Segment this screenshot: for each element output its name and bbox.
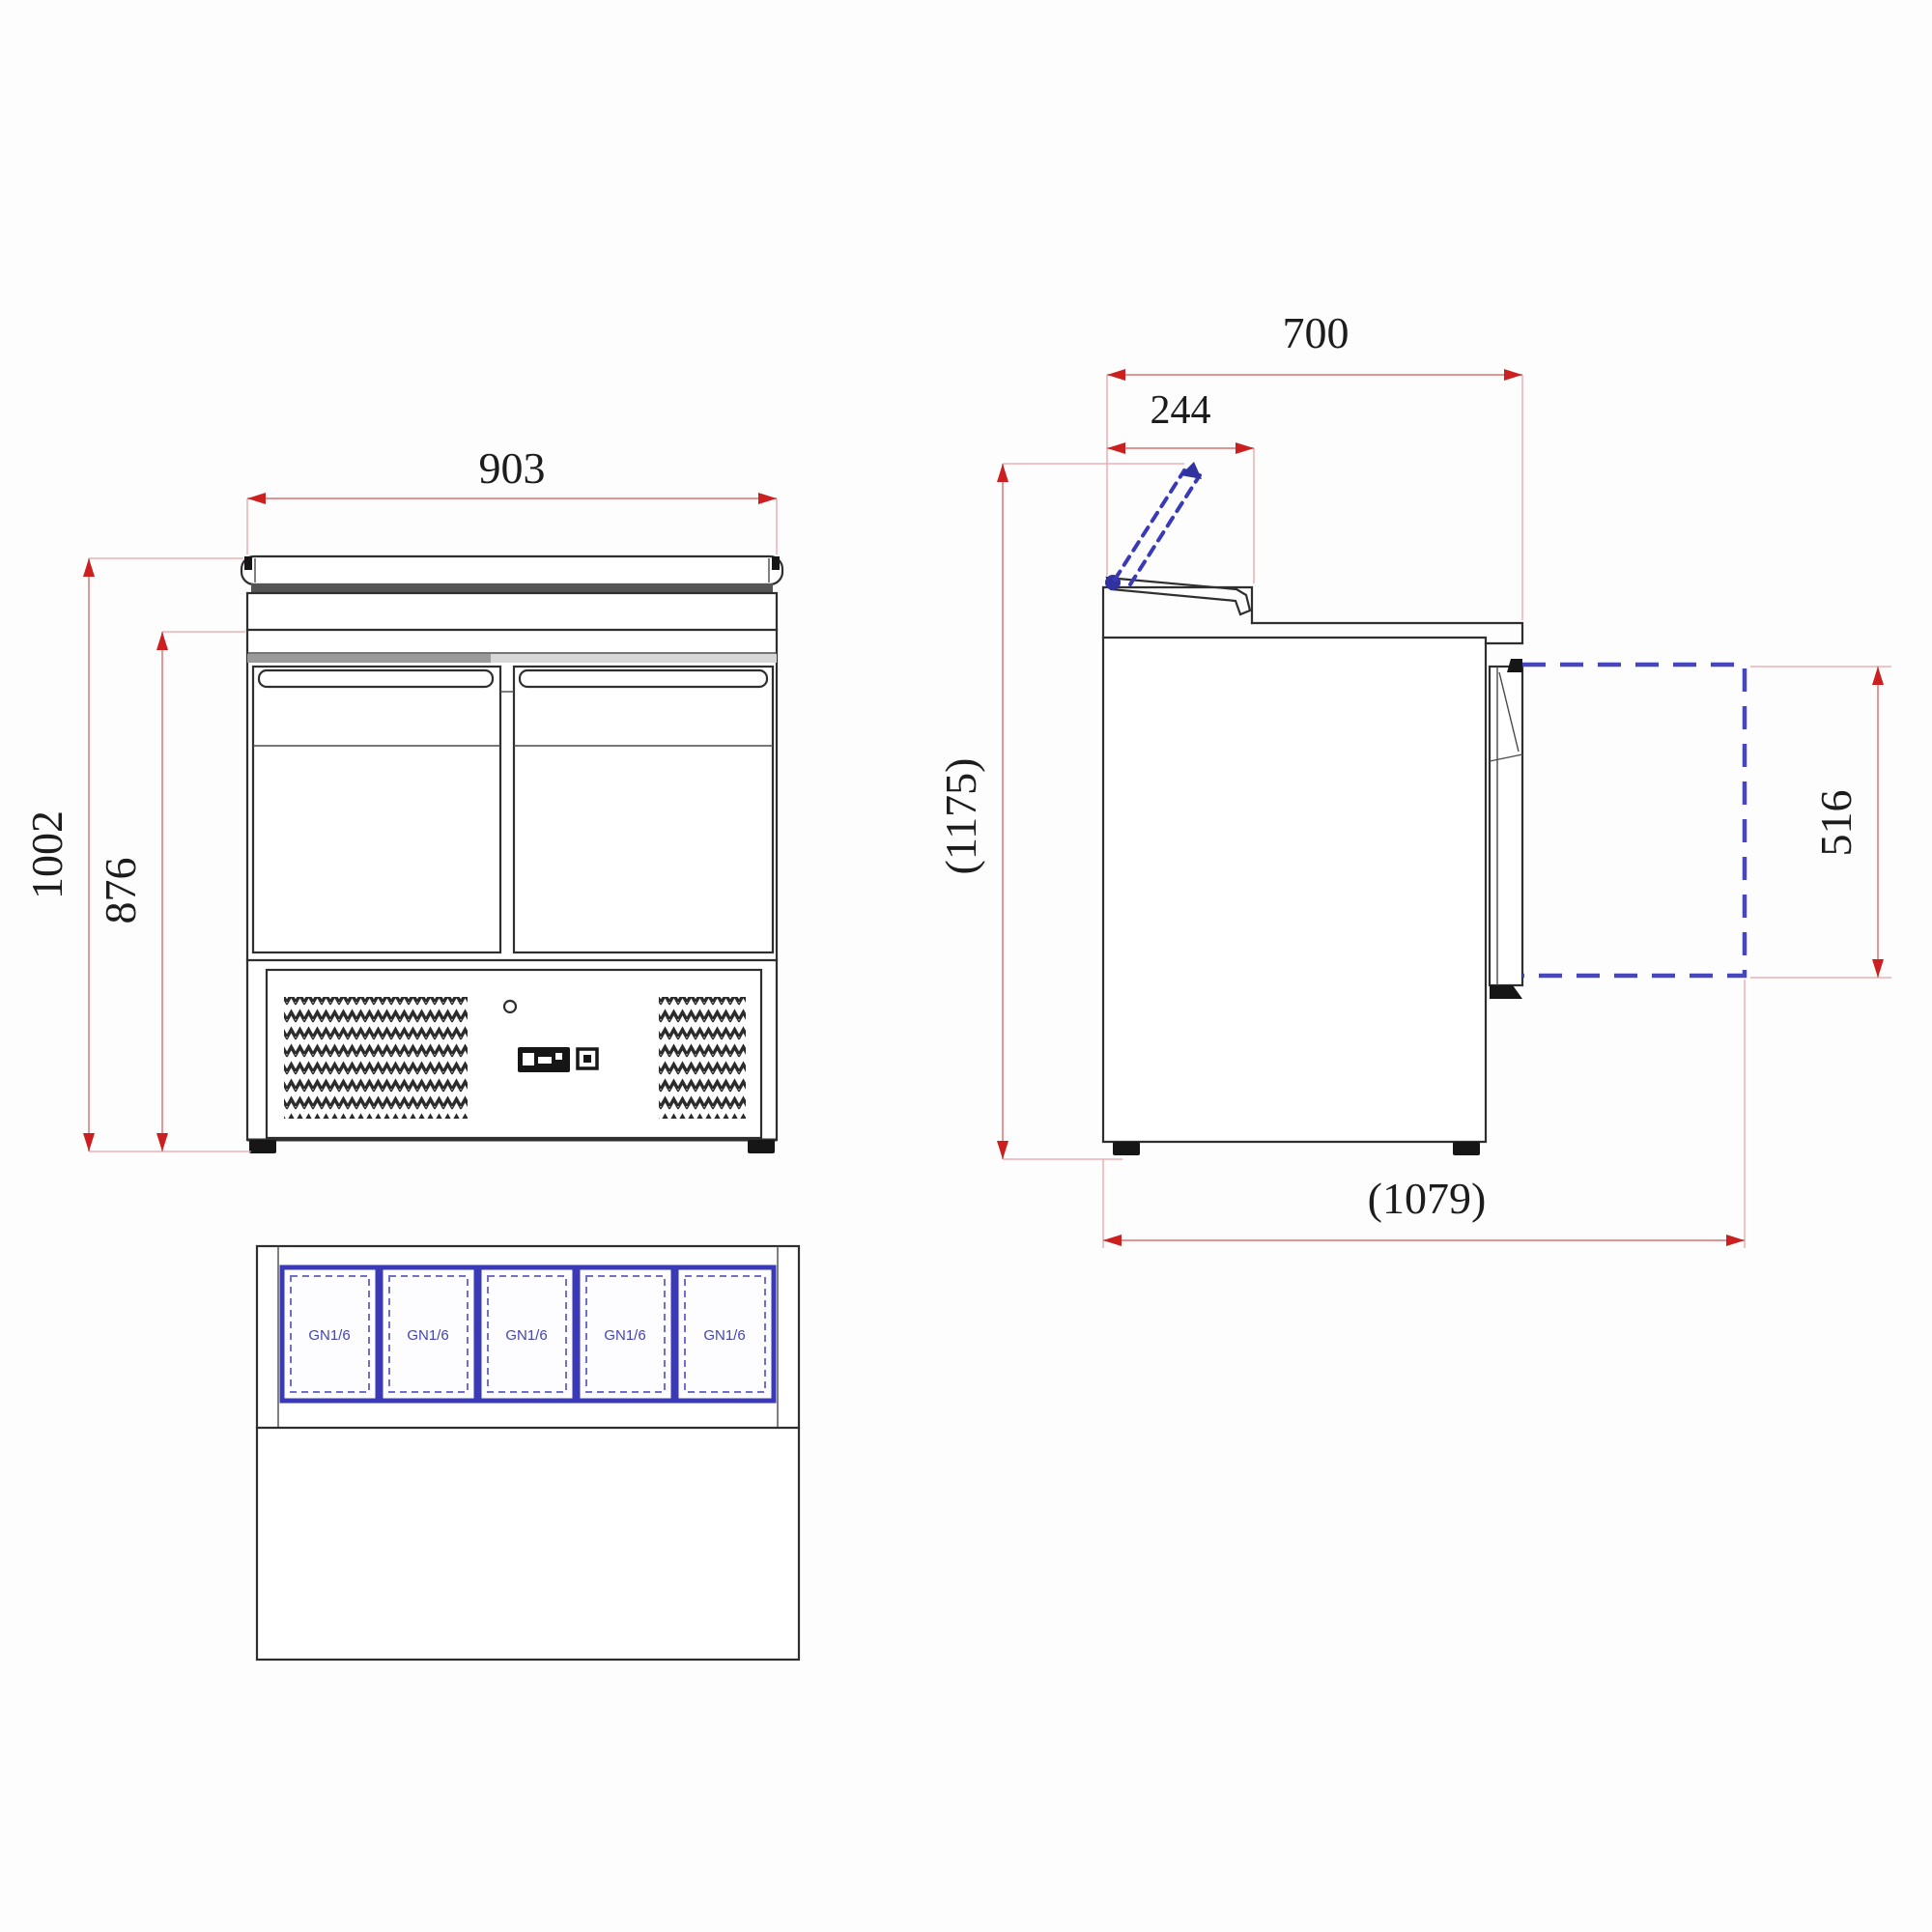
rail-right-tick (772, 556, 780, 570)
rail-bar (241, 556, 782, 584)
right-vent-grille (659, 997, 746, 1119)
side-lid-closed (1107, 578, 1250, 614)
dim-label-front-width: 903 (479, 443, 546, 493)
rail-left-tick (244, 556, 252, 570)
left-door (253, 667, 500, 952)
plinth-screw (504, 1001, 516, 1012)
gn-pan-row: GN1/6 GN1/6 GN1/6 GN1/6 GN1/6 (282, 1267, 774, 1401)
dim-label-side-door-height: 516 (1811, 790, 1861, 857)
side-lid-open-dashed (1115, 462, 1202, 584)
left-vent-grille (284, 997, 468, 1119)
gn-pan: GN1/6 (282, 1267, 378, 1401)
dim-label-side-lid-depth: 244 (1151, 388, 1211, 433)
gn-pan: GN1/6 (578, 1267, 673, 1401)
side-body (1103, 462, 1745, 1155)
dim-label-side-depth: 700 (1283, 308, 1350, 357)
technical-drawing-canvas: 903 1002 876 (0, 0, 1932, 1932)
dim-label-front-body-height: 876 (96, 858, 145, 924)
gn-pan-label: GN1/6 (604, 1327, 645, 1344)
right-door (514, 667, 773, 952)
plan-view: GN1/6 GN1/6 GN1/6 GN1/6 GN1/6 (257, 1246, 799, 1660)
drawing-sheet: 903 1002 876 (0, 0, 1932, 1932)
dim-front-total-height: 1002 (22, 558, 251, 1151)
gn-pan: GN1/6 (676, 1267, 774, 1401)
side-right-foot (1453, 1142, 1480, 1155)
right-door-handle (520, 670, 767, 687)
side-view: 700 244 (1175) 516 (1079 (936, 308, 1891, 1248)
gn-pan-label: GN1/6 (703, 1327, 745, 1344)
side-door-top-hinge (1507, 659, 1522, 672)
gn-pan: GN1/6 (479, 1267, 575, 1401)
gn-pan-label: GN1/6 (505, 1327, 547, 1344)
dim-side-lid-depth: 244 (1107, 388, 1254, 583)
front-gray-strip-dark (247, 654, 491, 663)
dim-label-side-depth-door-open: (1079) (1368, 1174, 1487, 1223)
controller-display (518, 1047, 570, 1072)
left-door-handle (259, 670, 493, 687)
front-view: 903 1002 876 (22, 443, 782, 1153)
front-plinth (247, 960, 777, 1153)
rail-shadow-bar (251, 583, 773, 593)
gn-pan-label: GN1/6 (308, 1327, 350, 1344)
front-doors (253, 667, 773, 952)
front-top-rail (241, 556, 782, 593)
controller-switch (578, 1049, 597, 1068)
dim-side-door-height: 516 (1750, 667, 1891, 978)
side-door (1490, 659, 1522, 999)
front-right-foot (748, 1140, 775, 1153)
dim-front-body-height: 876 (96, 632, 245, 1151)
gn-pan-label: GN1/6 (407, 1327, 448, 1344)
door-open-dashed-outline (1522, 665, 1745, 976)
gn-pan: GN1/6 (381, 1267, 476, 1401)
side-body-outline (1103, 638, 1486, 1142)
dim-front-width: 903 (247, 443, 777, 554)
dim-label-front-total-height: 1002 (22, 810, 71, 899)
side-door-bottom-bracket (1490, 985, 1522, 999)
side-left-foot (1113, 1142, 1140, 1155)
dim-label-side-total-height: (1175) (936, 758, 985, 875)
front-left-foot (249, 1140, 276, 1153)
